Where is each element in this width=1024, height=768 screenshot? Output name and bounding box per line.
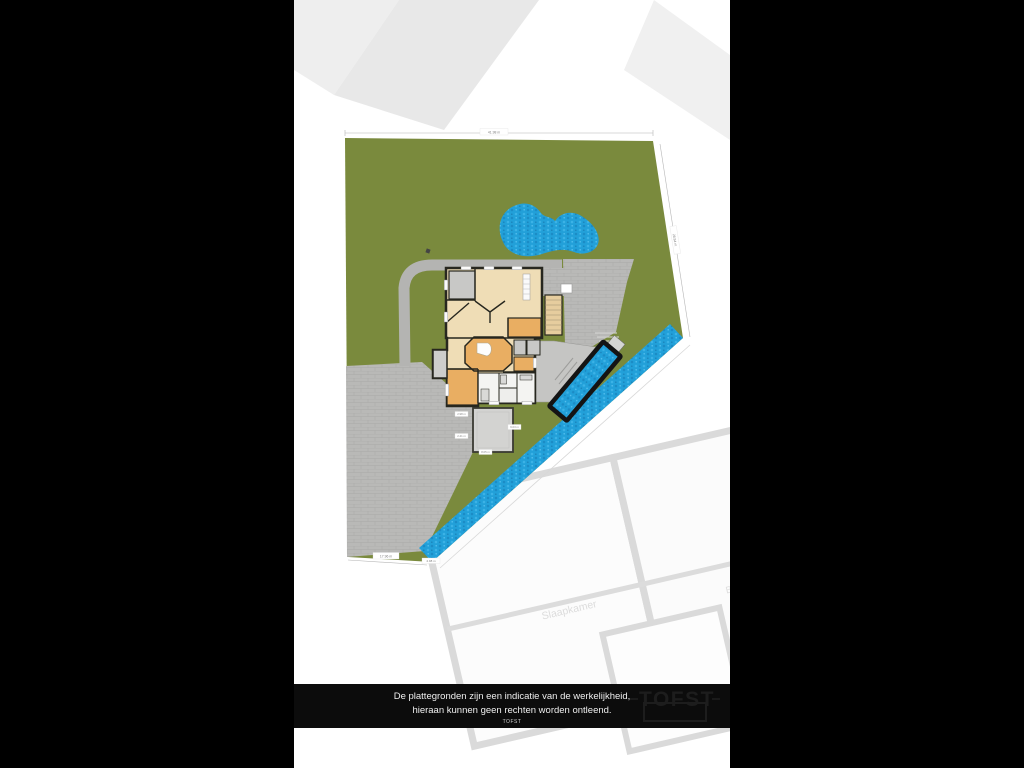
annex-room — [433, 350, 447, 378]
tofst-logo-frame — [643, 702, 707, 722]
exterior-stairs — [545, 295, 562, 335]
dim-label-canal: 4.98 m — [426, 559, 436, 563]
dim-tag: 2.41 m — [457, 434, 466, 438]
bedroom-room — [447, 369, 478, 405]
dim-tag: 2.98 m — [457, 412, 466, 416]
dim-tag: 8.05 m — [481, 450, 490, 454]
logo-left-tick — [630, 698, 638, 700]
site-plan-drawing: Slaapkamer Berging — [294, 0, 730, 768]
garden-shed — [473, 408, 513, 452]
left-black-margin — [0, 0, 294, 768]
bathroom-rooms — [478, 373, 535, 403]
dim-tag: 6.03 m — [510, 425, 519, 429]
floorplan-sheet: Slaapkamer Berging — [294, 0, 730, 768]
logo-right-tick — [712, 698, 720, 700]
dim-label-bottom: 17.96 m — [380, 554, 392, 558]
dim-label-top: 41.98 m — [488, 130, 500, 134]
disclaimer-bar: De plattegronden zijn een indicatie van … — [294, 684, 730, 728]
garage-room — [449, 271, 475, 299]
interior-stairs — [523, 274, 530, 300]
tofst-logo: TOFST — [634, 689, 716, 723]
kitchen-room — [508, 318, 541, 337]
right-black-margin — [730, 0, 1024, 768]
gate-marker — [561, 284, 572, 293]
